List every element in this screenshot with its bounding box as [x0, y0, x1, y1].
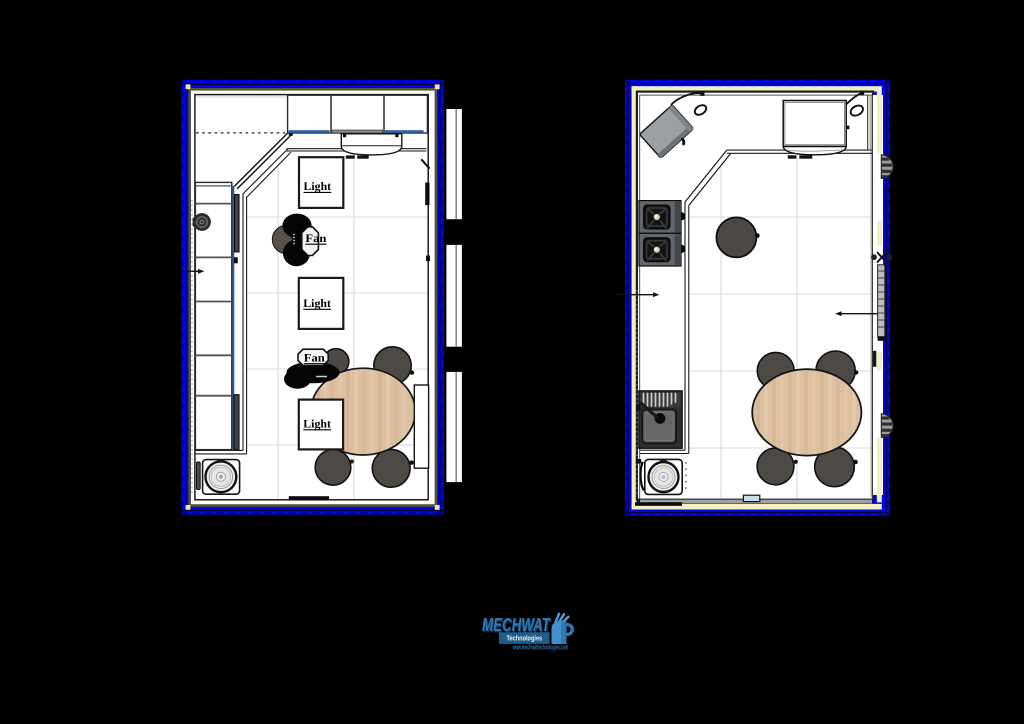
svg-text:Light: Light — [303, 298, 331, 310]
svg-text:Light: Light — [304, 181, 332, 193]
svg-text:www.mechwattechnologies.com: www.mechwattechnologies.com — [512, 645, 568, 653]
svg-text:Fan: Fan — [305, 233, 327, 245]
svg-text:MECHWAT: MECHWAT — [482, 615, 551, 636]
svg-text:Technologies: Technologies — [507, 635, 543, 643]
svg-text:Light: Light — [303, 418, 331, 430]
svg-text:Fan: Fan — [304, 352, 326, 364]
